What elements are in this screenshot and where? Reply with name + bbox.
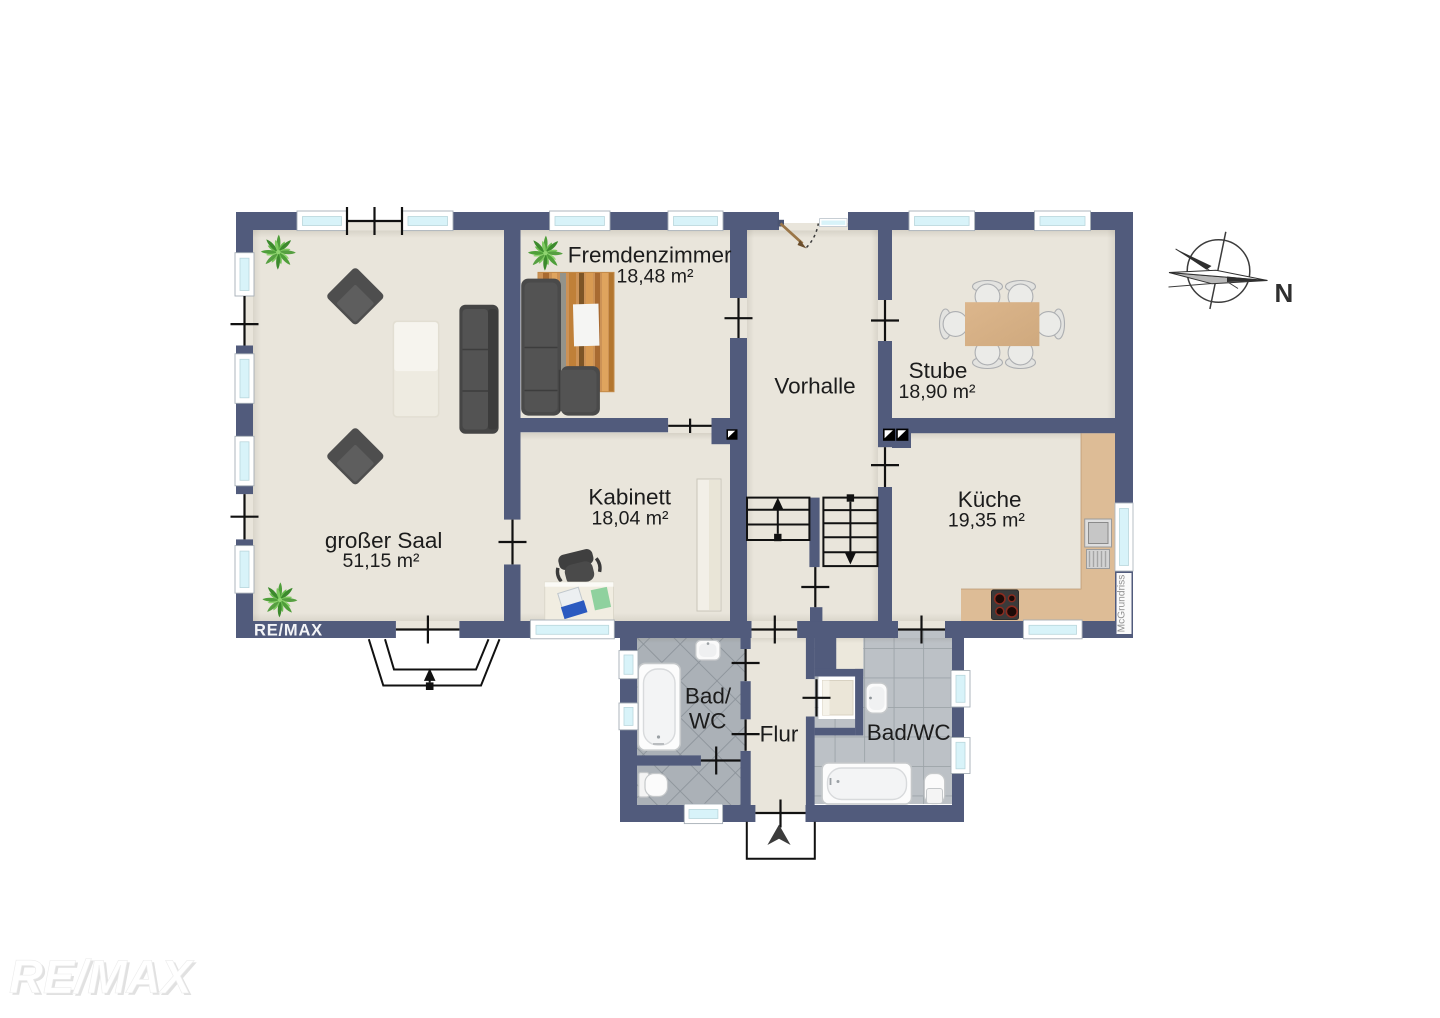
svg-text:McGrundriss: McGrundriss [1117, 575, 1128, 633]
svg-text:N: N [1275, 278, 1294, 308]
svg-text:RE/MAX: RE/MAX [9, 950, 194, 1003]
svg-text:51,15 m²: 51,15 m² [343, 550, 420, 572]
svg-text:19,35 m²: 19,35 m² [948, 510, 1025, 532]
svg-text:18,90 m²: 18,90 m² [899, 381, 976, 403]
svg-text:18,04 m²: 18,04 m² [592, 508, 669, 530]
svg-text:Flur: Flur [760, 722, 799, 747]
svg-text:RE/MAX: RE/MAX [254, 622, 323, 640]
svg-text:18,48 m²: 18,48 m² [617, 266, 694, 288]
svg-text:Kabinett: Kabinett [588, 485, 671, 510]
svg-text:Stube: Stube [909, 358, 968, 383]
svg-text:Fremdenzimmer: Fremdenzimmer [568, 243, 732, 268]
svg-text:Vorhalle: Vorhalle [774, 374, 855, 399]
svg-text:WC: WC [689, 709, 727, 734]
svg-text:Bad/: Bad/ [685, 684, 732, 709]
svg-text:Küche: Küche [958, 487, 1022, 512]
svg-text:Bad/WC: Bad/WC [867, 720, 951, 745]
